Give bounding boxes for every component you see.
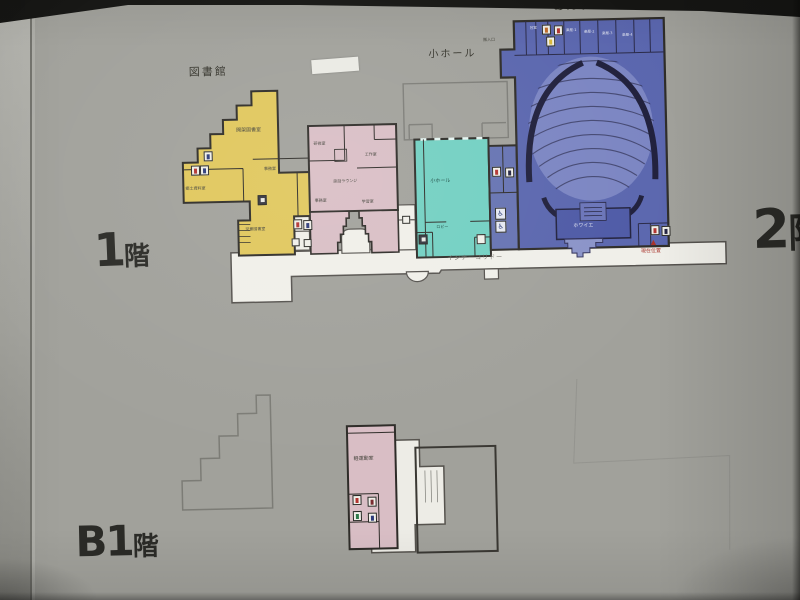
accessible-toilet-icon [353, 511, 362, 521]
floor-guide-sign-photo: 図書館 小ホール あんずホール 1階 B1階 2階 開架図書室 事務室 郷土資料… [0, 0, 800, 600]
elevator-icon [204, 151, 213, 161]
room-label-training: 研修室 [313, 142, 325, 147]
stage-thrust [580, 202, 606, 221]
mens-toilet-icon [303, 220, 312, 230]
mens-toilet-icon [554, 25, 563, 35]
womens-toilet-icon [650, 225, 659, 235]
womens-toilet-icon [542, 25, 551, 35]
room-label-open-stack: 開架図書室 [236, 128, 261, 134]
current-location-label: 現在位置 [641, 249, 661, 255]
stairs-icon [292, 238, 300, 246]
womens-toilet-icon [191, 166, 200, 176]
upper-floor-ghost-outline [403, 82, 508, 140]
room-label-lobby: ロビー [436, 225, 448, 230]
corridor-label: インナーコリドー [447, 255, 503, 263]
hall-restroom-block [489, 145, 519, 250]
service-block-mid [397, 205, 416, 250]
room-label-exercise: 軽運動室 [354, 457, 374, 463]
floor-plan-board: 図書館 小ホール あんずホール 1階 B1階 2階 開架図書室 事務室 郷土資料… [0, 0, 800, 600]
room-label-study: 学習室 [362, 200, 374, 205]
mens-toilet-icon [505, 167, 514, 177]
stairs-icon [477, 234, 486, 244]
womens-toilet-icon [293, 219, 302, 229]
room-label-craft: 工作室 [365, 152, 377, 157]
room-label-dressing-2: 楽屋-2 [584, 31, 595, 35]
room-label-children: 児童図書室 [245, 227, 265, 232]
b1-ghost-footprint [572, 376, 732, 553]
b1-exercise-room [347, 425, 398, 549]
corridor-bump [406, 271, 428, 281]
accessible-toilet-icon: ♿ [495, 221, 506, 233]
corridor-kiosk [484, 269, 498, 279]
small-hall-title: 小ホール [428, 48, 476, 60]
stairs-icon [304, 239, 312, 247]
floor-label-1f: 1階 [93, 223, 151, 276]
elevator-icon [546, 36, 555, 46]
stairs-icon [402, 216, 410, 224]
room-label-dressing-1: 楽屋-1 [566, 29, 577, 33]
room-label-foyer: ホワイエ [573, 224, 593, 230]
room-label-library-office: 事務室 [264, 167, 276, 172]
womens-toilet-icon [352, 495, 361, 505]
elevator-icon [258, 195, 267, 205]
basement-plan [172, 367, 736, 580]
room-label-lounge: 談話ラウンジ [333, 179, 357, 184]
room-label-green-room: 控室 [530, 27, 537, 31]
mens-toilet-icon [200, 165, 209, 175]
current-location-marker: ▲ [651, 239, 657, 247]
room-label-dressing-4: 楽屋-4 [622, 34, 633, 38]
room-label-small-hall: 小ホール [430, 179, 450, 185]
mens-toilet-icon [367, 497, 376, 507]
elevator-icon [368, 513, 377, 523]
room-label-local-history: 郷土資料室 [185, 186, 205, 191]
photo-dark-bottom-edge [0, 592, 800, 600]
accessible-toilet-icon: ♿ [495, 208, 506, 220]
mens-toilet-icon [661, 226, 670, 236]
b1-ghost-steps [180, 395, 273, 510]
room-label-dressing-3: 楽屋-3 [602, 32, 613, 36]
floor-label-b1: B1階 [75, 518, 159, 566]
photo-dark-right-edge [792, 0, 800, 600]
elevator-icon [419, 234, 428, 244]
library-title: 図書館 [189, 66, 228, 79]
womens-toilet-icon [492, 167, 501, 177]
room-label-community-office: 事務室 [315, 199, 327, 204]
room-label-load-in: 搬入口 [483, 38, 495, 43]
